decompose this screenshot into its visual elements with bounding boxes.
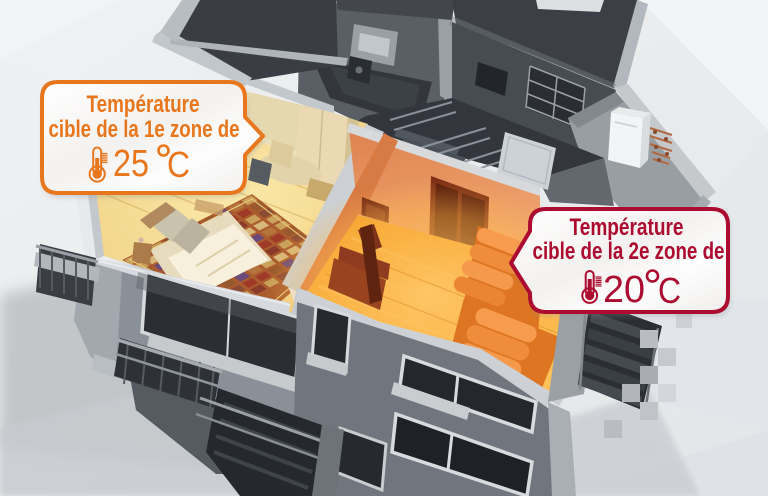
- svg-text:cible de la 2e zone de: cible de la 2e zone de: [533, 238, 725, 265]
- svg-text:Température: Température: [87, 91, 200, 118]
- svg-text:25: 25: [113, 143, 149, 185]
- svg-text:cible de la 1e zone de: cible de la 1e zone de: [49, 116, 240, 143]
- svg-text:Température: Température: [570, 214, 684, 241]
- svg-text:C: C: [167, 144, 190, 185]
- svg-text:20: 20: [603, 269, 645, 311]
- svg-text:C: C: [658, 270, 681, 311]
